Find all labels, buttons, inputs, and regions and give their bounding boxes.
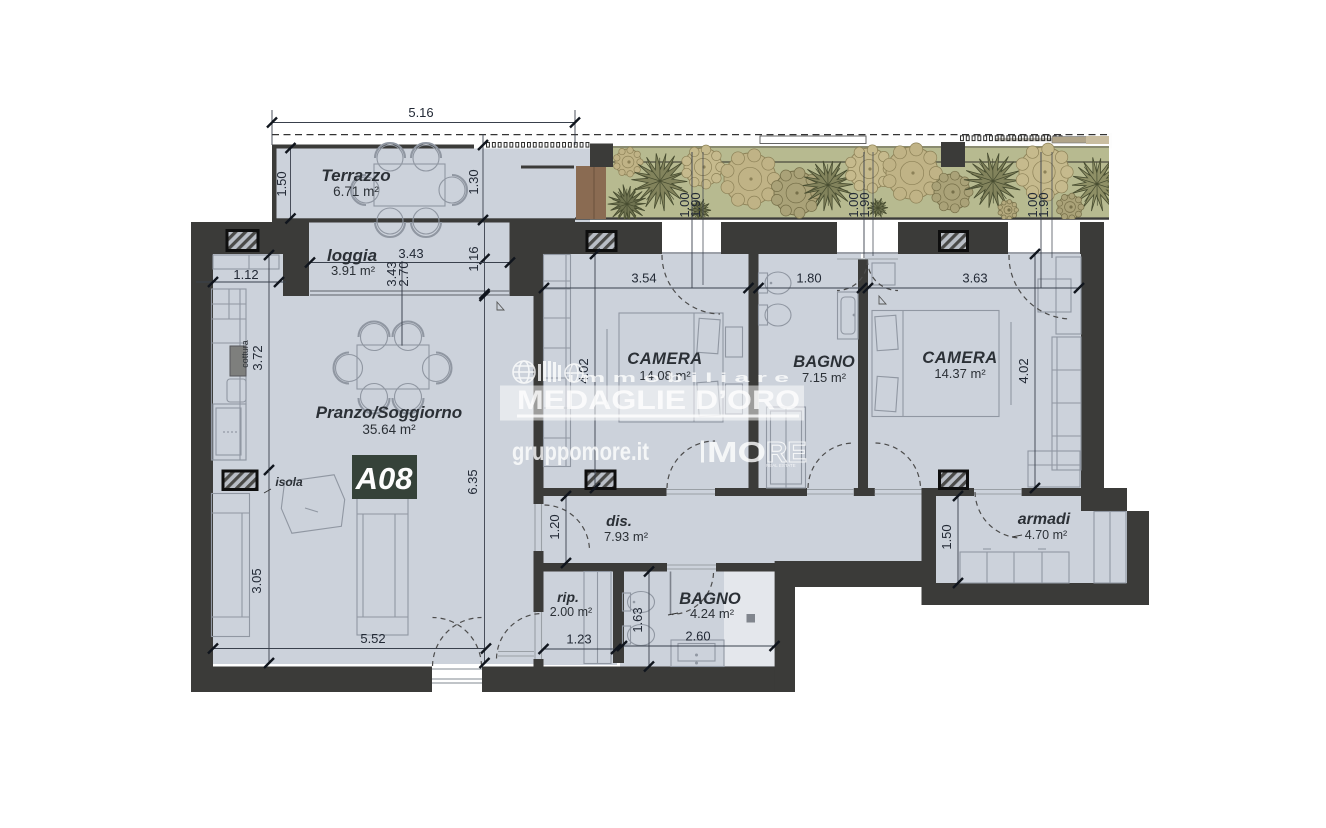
svg-text:35.64 m²: 35.64 m² — [362, 422, 416, 437]
svg-text:4.24 m²: 4.24 m² — [690, 606, 735, 621]
svg-text:isola: isola — [275, 475, 303, 489]
svg-text:rip.: rip. — [557, 589, 579, 605]
svg-text:cottura: cottura — [240, 340, 250, 368]
svg-text:3.05: 3.05 — [249, 568, 264, 593]
svg-text:4.70 m²: 4.70 m² — [1025, 528, 1067, 542]
svg-text:3.91 m²: 3.91 m² — [331, 263, 376, 278]
svg-text:3.63: 3.63 — [962, 271, 987, 286]
svg-text:1.23: 1.23 — [566, 632, 591, 647]
svg-text:CAMERA: CAMERA — [627, 350, 702, 368]
svg-text:7.93 m²: 7.93 m² — [604, 529, 649, 544]
svg-text:MO: MO — [707, 437, 766, 469]
svg-text:1.90: 1.90 — [688, 192, 703, 217]
svg-text:1.50: 1.50 — [274, 171, 289, 196]
svg-text:CAMERA: CAMERA — [922, 349, 997, 367]
svg-text:7.15 m²: 7.15 m² — [802, 370, 847, 385]
svg-text:2.70: 2.70 — [396, 261, 411, 286]
svg-text:1.63: 1.63 — [630, 607, 645, 632]
svg-text:1.90: 1.90 — [857, 192, 872, 217]
svg-text:3.54: 3.54 — [631, 271, 656, 286]
svg-text:1.90: 1.90 — [1036, 192, 1051, 217]
svg-text:5.52: 5.52 — [360, 631, 385, 646]
svg-text:A08: A08 — [355, 461, 414, 496]
svg-text:i m m o b i l i a r e: i m m o b i l i a r e — [567, 370, 789, 385]
svg-text:BAGNO: BAGNO — [793, 353, 855, 371]
svg-text:REAL ESTATE: REAL ESTATE — [766, 463, 796, 468]
svg-text:6.35: 6.35 — [465, 469, 480, 494]
svg-text:gruppomore.it: gruppomore.it — [512, 438, 650, 466]
svg-text:1.50: 1.50 — [939, 524, 954, 549]
svg-text:dis.: dis. — [606, 513, 632, 530]
svg-text:1.12: 1.12 — [233, 267, 258, 282]
svg-text:armadi: armadi — [1018, 511, 1071, 528]
svg-text:1.80: 1.80 — [796, 271, 821, 286]
svg-text:5.16: 5.16 — [408, 105, 433, 120]
svg-text:14.37 m²: 14.37 m² — [934, 366, 986, 381]
svg-text:2.00 m²: 2.00 m² — [550, 605, 592, 619]
svg-text:2.60: 2.60 — [685, 629, 710, 644]
svg-text:Pranzo/Soggiorno: Pranzo/Soggiorno — [316, 403, 462, 422]
svg-text:1.30: 1.30 — [466, 169, 481, 194]
svg-text:1.16: 1.16 — [466, 246, 481, 271]
svg-text:Terrazzo: Terrazzo — [321, 166, 390, 185]
svg-text:3.72: 3.72 — [250, 345, 265, 370]
svg-text:3.43: 3.43 — [398, 246, 423, 261]
svg-text:1.20: 1.20 — [547, 514, 562, 539]
svg-text:6.71 m²: 6.71 m² — [333, 184, 379, 199]
svg-text:MEDAGLIE D’ORO: MEDAGLIE D’ORO — [517, 385, 800, 415]
svg-text:4.02: 4.02 — [1016, 358, 1031, 383]
